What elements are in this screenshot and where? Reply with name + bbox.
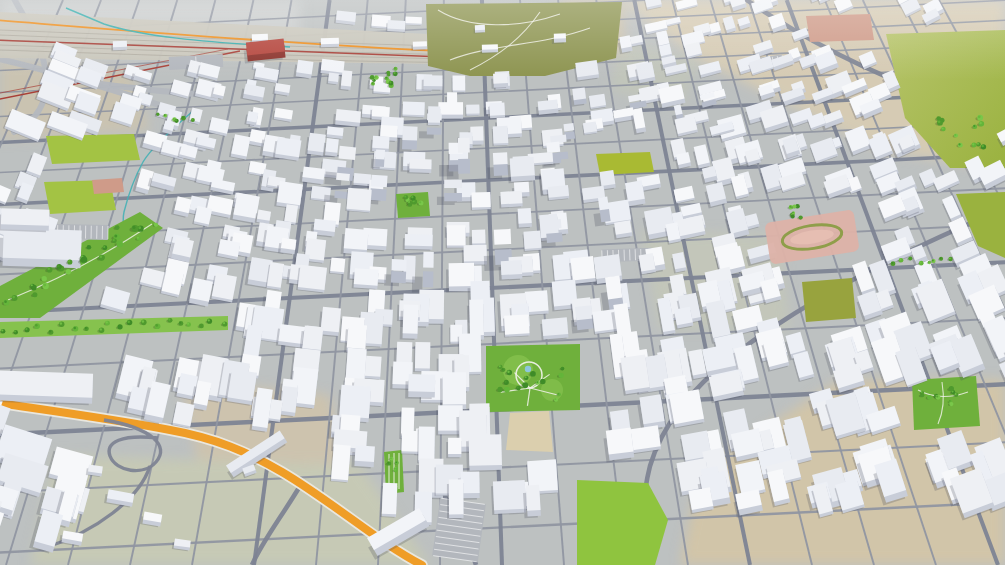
building (503, 314, 530, 337)
building (466, 434, 502, 472)
building (352, 268, 379, 290)
building (516, 208, 532, 229)
building (491, 480, 526, 515)
building (333, 109, 361, 128)
building (522, 231, 541, 252)
building (0, 370, 93, 405)
city-render-svg (0, 0, 1005, 565)
building (636, 394, 665, 432)
building (498, 260, 522, 281)
building (470, 192, 491, 211)
building (612, 220, 632, 239)
city-map-3d-render (0, 0, 1005, 565)
building (417, 426, 435, 463)
building (380, 483, 397, 518)
building (535, 99, 558, 116)
building (551, 254, 571, 284)
building (672, 307, 693, 330)
building (345, 188, 371, 213)
building (540, 317, 569, 340)
building (446, 263, 474, 293)
central-park (486, 344, 580, 412)
building (0, 208, 49, 232)
building (618, 354, 650, 395)
building (446, 438, 461, 459)
plaza (506, 411, 553, 452)
building (687, 487, 714, 514)
building (465, 105, 479, 117)
building (507, 157, 535, 183)
building (329, 257, 345, 275)
building (588, 94, 606, 110)
lawn-west-1 (46, 134, 140, 164)
building (325, 126, 344, 140)
courts-pink-w (92, 178, 124, 194)
building (637, 253, 656, 275)
building (603, 428, 635, 463)
building (296, 265, 327, 294)
building (447, 479, 464, 519)
building (403, 234, 433, 251)
horizon-haze (0, 0, 1005, 80)
building (446, 225, 466, 248)
building (462, 245, 487, 266)
building (401, 101, 424, 117)
building (667, 389, 704, 428)
building (488, 103, 505, 119)
building (499, 191, 523, 209)
building (582, 121, 597, 135)
building (413, 342, 430, 372)
building (405, 374, 435, 399)
building (440, 372, 466, 410)
olive-field-east (802, 278, 856, 322)
building (407, 159, 431, 174)
building (330, 444, 351, 483)
building (546, 185, 569, 201)
building (492, 126, 509, 147)
park-bottom-right (912, 376, 980, 430)
